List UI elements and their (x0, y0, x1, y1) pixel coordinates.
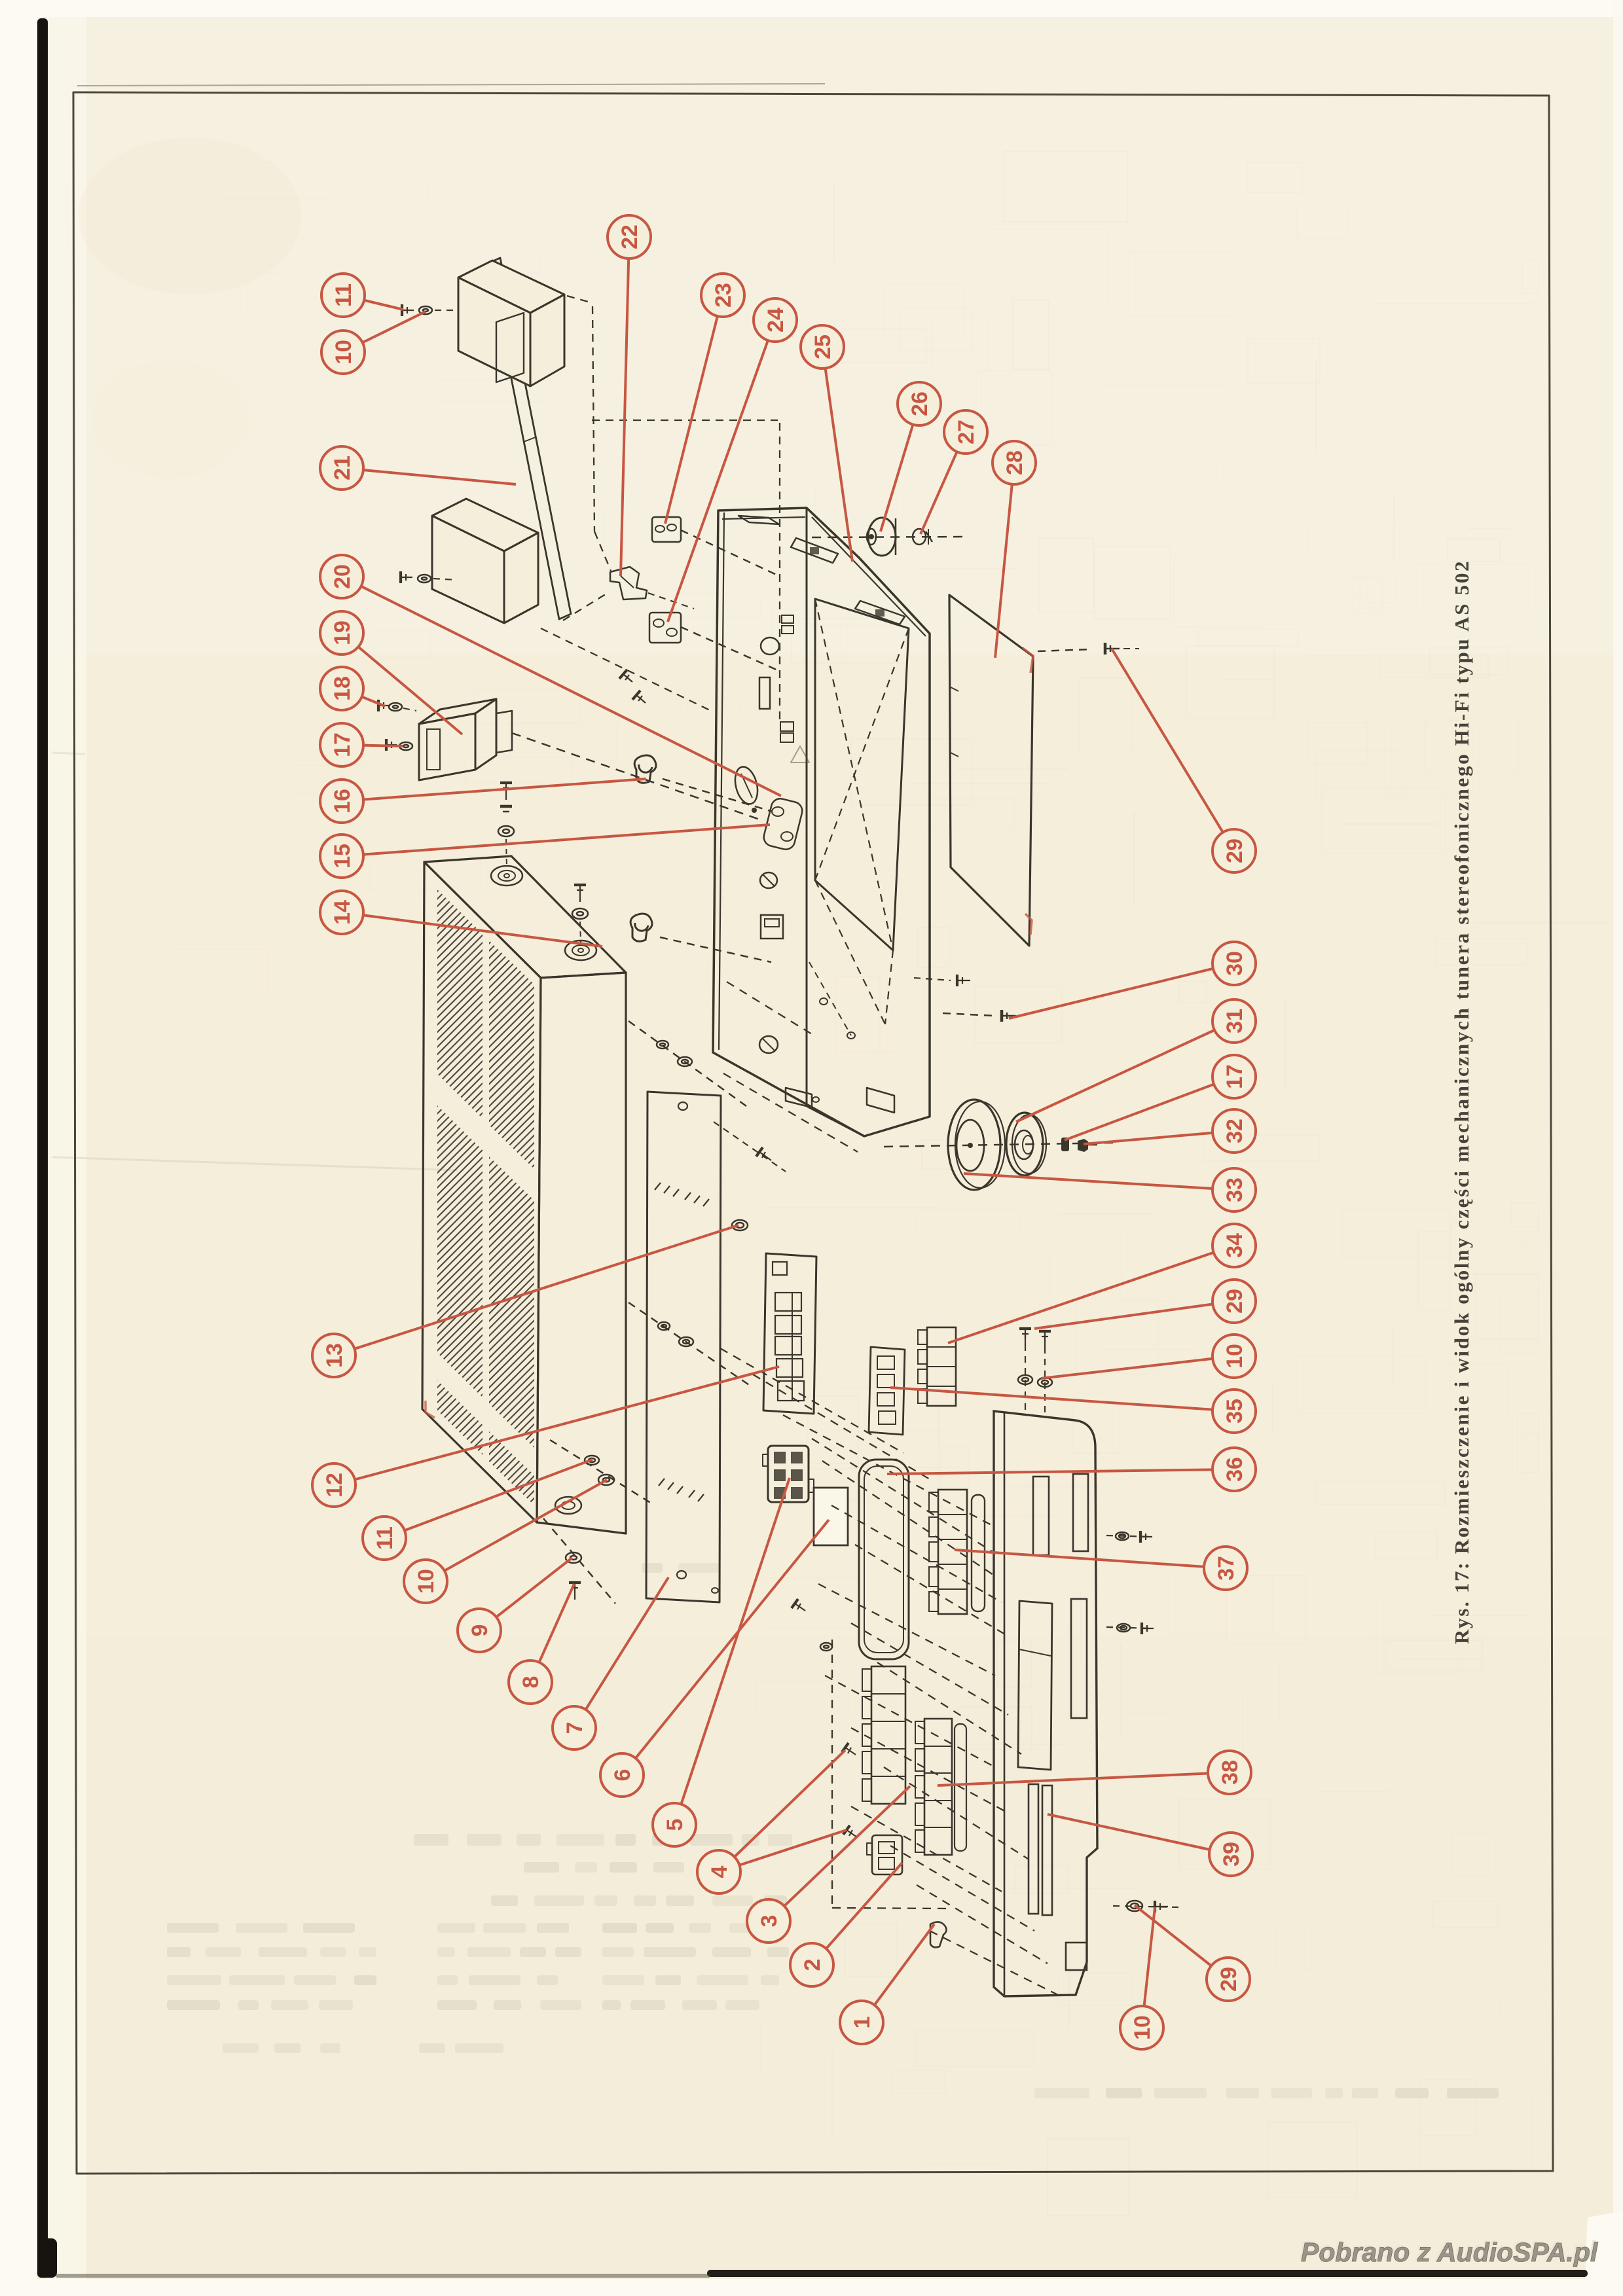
svg-text:25: 25 (811, 334, 835, 359)
svg-text:17: 17 (330, 732, 355, 757)
svg-text:37: 37 (1214, 1556, 1239, 1581)
svg-text:17: 17 (1222, 1064, 1247, 1089)
svg-text:35: 35 (1222, 1399, 1247, 1424)
svg-text:28: 28 (1002, 450, 1027, 475)
svg-text:20: 20 (330, 564, 355, 589)
svg-text:38: 38 (1218, 1760, 1243, 1785)
svg-text:31: 31 (1222, 1009, 1247, 1033)
svg-text:34: 34 (1222, 1233, 1247, 1258)
svg-text:16: 16 (330, 789, 355, 814)
svg-text:9: 9 (467, 1624, 492, 1637)
svg-text:7: 7 (562, 1722, 587, 1734)
svg-text:19: 19 (330, 620, 355, 645)
svg-text:10: 10 (1130, 2015, 1155, 2040)
svg-text:13: 13 (322, 1343, 347, 1368)
svg-text:33: 33 (1222, 1177, 1247, 1202)
svg-text:10: 10 (331, 340, 356, 365)
svg-text:29: 29 (1222, 1289, 1247, 1314)
svg-text:11: 11 (331, 283, 356, 307)
svg-text:26: 26 (907, 391, 932, 416)
svg-text:24: 24 (763, 308, 788, 332)
svg-text:18: 18 (330, 676, 355, 701)
svg-text:23: 23 (711, 283, 736, 308)
svg-text:36: 36 (1222, 1457, 1247, 1482)
svg-text:Rys. 17: Rozmieszczenie i wido: Rys. 17: Rozmieszczenie i widok ogólny c… (1450, 560, 1473, 1644)
svg-text:10: 10 (414, 1569, 439, 1594)
svg-text:3: 3 (757, 1915, 782, 1928)
svg-text:4: 4 (707, 1865, 732, 1878)
svg-text:15: 15 (330, 844, 355, 869)
svg-text:5: 5 (663, 1819, 687, 1831)
svg-text:6: 6 (610, 1769, 635, 1782)
svg-text:14: 14 (330, 900, 355, 925)
svg-text:8: 8 (519, 1676, 543, 1689)
svg-text:29: 29 (1222, 838, 1247, 863)
svg-text:30: 30 (1222, 951, 1247, 976)
svg-text:39: 39 (1219, 1842, 1244, 1867)
svg-text:22: 22 (617, 224, 642, 249)
svg-text:29: 29 (1216, 1967, 1241, 1992)
svg-text:21: 21 (330, 456, 355, 480)
svg-text:1: 1 (850, 2017, 875, 2029)
svg-text:11: 11 (373, 1526, 397, 1550)
svg-text:32: 32 (1222, 1119, 1247, 1143)
svg-text:2: 2 (800, 1959, 825, 1971)
svg-text:10: 10 (1222, 1344, 1247, 1369)
svg-text:Pobrano z AudioSPA.pl: Pobrano z AudioSPA.pl (1301, 2237, 1599, 2267)
svg-text:12: 12 (322, 1473, 347, 1498)
svg-text:27: 27 (954, 420, 979, 444)
